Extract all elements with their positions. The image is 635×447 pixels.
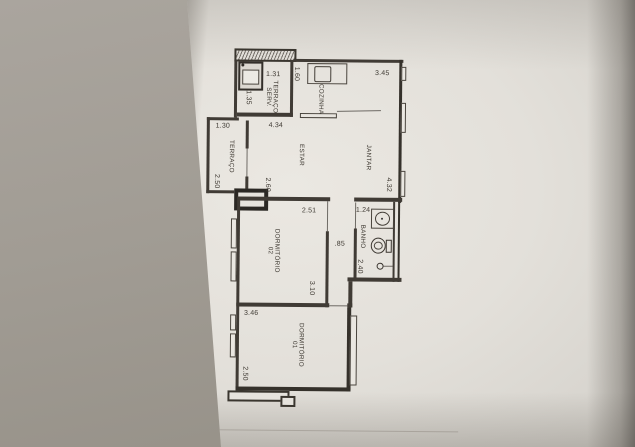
dim-dorm02-3-10: 3.10 xyxy=(308,281,315,296)
paper-sheet: 1.31 1.35 1.60 3.45 1.30 4.34 2.50 2.60 … xyxy=(0,0,635,447)
dim-dorm01-3-46: 3.46 xyxy=(244,310,259,317)
jantar-window-2 xyxy=(401,103,406,133)
dim-terraco-1-30: 1.30 xyxy=(216,123,231,130)
room-label-jantar: JANTAR xyxy=(364,145,371,171)
cooktop-icon xyxy=(314,66,331,82)
wall-banho-bottom xyxy=(347,277,401,281)
dorm02-window-2 xyxy=(230,251,236,281)
toilet-inner-bowl xyxy=(374,242,383,250)
dorm01-right-window xyxy=(350,315,358,385)
room-label-dormitorio-01: DORMITÓRIO 01 xyxy=(290,323,304,367)
wall-banho-right-outer xyxy=(397,202,400,282)
dim-serv-1-35: 1.35 xyxy=(244,90,251,105)
dim-terraco-2-50: 2.50 xyxy=(213,174,220,189)
wall-dorm02-left xyxy=(236,200,240,306)
dim-jantar-3-45: 3.45 xyxy=(375,70,390,77)
dorm02-window-1 xyxy=(231,218,237,248)
terraco-door-leaf xyxy=(246,149,247,177)
wall-terraco-top xyxy=(207,117,239,120)
paper-right-edge-shadow xyxy=(587,0,635,447)
dim-dorm02-2-51: 2.51 xyxy=(302,207,317,214)
jantar-window-3 xyxy=(400,171,405,197)
room-label-line: BANHO xyxy=(358,225,365,249)
dorm01-window-2 xyxy=(230,333,236,357)
dim-banho-2-40: 2.40 xyxy=(356,259,363,274)
wall-dorm02-top xyxy=(237,196,330,201)
room-label-terraco-servico: TERRAÇO SERV. xyxy=(264,80,278,113)
paper-crease-line xyxy=(203,429,458,432)
room-label-line: COZINHA xyxy=(317,84,324,114)
photo-of-floor-plan: 1.31 1.35 1.60 3.45 1.30 4.34 2.50 2.60 … xyxy=(0,0,635,447)
room-label-line: 01 xyxy=(290,323,297,367)
bathroom-sink-drain-dot xyxy=(381,218,383,220)
wall-dorm02-right xyxy=(325,231,329,307)
counter-extension-line xyxy=(337,110,381,112)
floor-plan: 1.31 1.35 1.60 3.45 1.30 4.34 2.50 2.60 … xyxy=(0,0,635,447)
dim-estar-4-34: 4.34 xyxy=(269,122,284,129)
room-label-line: 02 xyxy=(266,229,273,273)
room-label-estar: ESTAR xyxy=(297,144,304,166)
room-label-terraco: TERRAÇO xyxy=(227,140,234,173)
room-label-dormitorio-02: DORMITÓRIO 02 xyxy=(266,229,280,273)
room-label-banho: BANHO xyxy=(358,225,365,249)
wall-terraco-left xyxy=(206,117,210,193)
jantar-window-1 xyxy=(401,67,406,81)
dorm01-bay-step xyxy=(280,396,295,407)
wall-dorm01-top xyxy=(236,302,329,307)
louvered-window-icon xyxy=(234,48,296,62)
dim-estar-2-60: 2.60 xyxy=(264,177,271,192)
shower-point-icon xyxy=(377,263,384,270)
dim-serv-1-31: 1.31 xyxy=(266,71,281,78)
dim-cozinha-1-60: 1.60 xyxy=(293,67,300,82)
wall-serv-left xyxy=(234,59,238,117)
room-label-line: ESTAR xyxy=(297,144,304,166)
toilet-tank xyxy=(386,240,392,253)
shower-arm-line xyxy=(384,266,393,267)
dorm02-door-leaf xyxy=(327,201,328,231)
room-label-cozinha: COZINHA xyxy=(317,84,324,114)
room-label-line: JANTAR xyxy=(364,145,371,171)
laundry-tank-basin xyxy=(242,69,259,84)
laundry-tank-tap-dot xyxy=(241,63,244,66)
dorm01-door-leaf xyxy=(329,305,347,306)
dim-dorm01-2-50: 2.50 xyxy=(241,366,248,381)
dorm01-window-1 xyxy=(230,314,236,330)
room-label-line: SERV. xyxy=(264,80,271,113)
wall-terraco-estar-upper xyxy=(246,121,249,149)
room-label-line: TERRAÇO xyxy=(227,140,234,173)
dim-banho-1-24: 1.24 xyxy=(356,207,371,214)
dim-jantar-4-32: 4.32 xyxy=(385,178,392,193)
dim-corridor-85: .85 xyxy=(335,241,345,248)
